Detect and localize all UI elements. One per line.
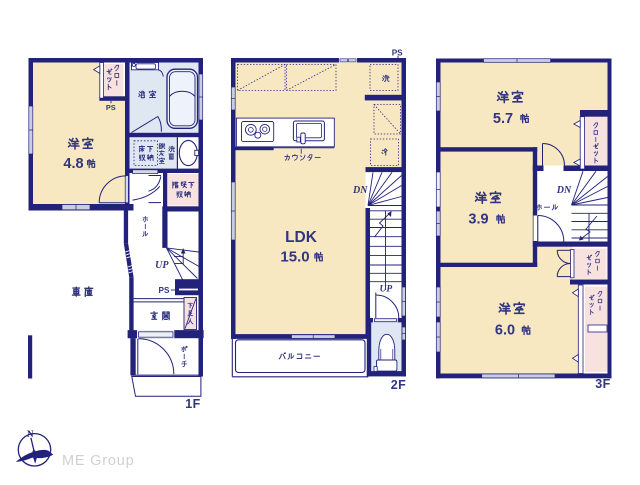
svg-text:3F: 3F — [595, 377, 611, 391]
svg-text:PS: PS — [106, 103, 116, 112]
svg-text:UP: UP — [155, 260, 169, 271]
svg-text:3.9: 3.9 — [468, 211, 488, 227]
svg-text:N: N — [27, 429, 34, 439]
svg-text:ME Group: ME Group — [62, 453, 134, 469]
svg-text:PS: PS — [159, 286, 170, 295]
svg-text:DN: DN — [352, 185, 368, 196]
svg-text:PS: PS — [392, 48, 403, 57]
svg-text:1F: 1F — [185, 397, 201, 411]
svg-text:4.8: 4.8 — [63, 156, 83, 172]
svg-text:6.0: 6.0 — [495, 323, 515, 339]
svg-text:LDK: LDK — [285, 229, 318, 246]
svg-text:5.7: 5.7 — [493, 111, 513, 127]
svg-text:15.0: 15.0 — [280, 249, 309, 266]
svg-text:2F: 2F — [391, 378, 407, 392]
svg-text:DN: DN — [556, 185, 572, 196]
svg-text:UP: UP — [379, 285, 392, 295]
